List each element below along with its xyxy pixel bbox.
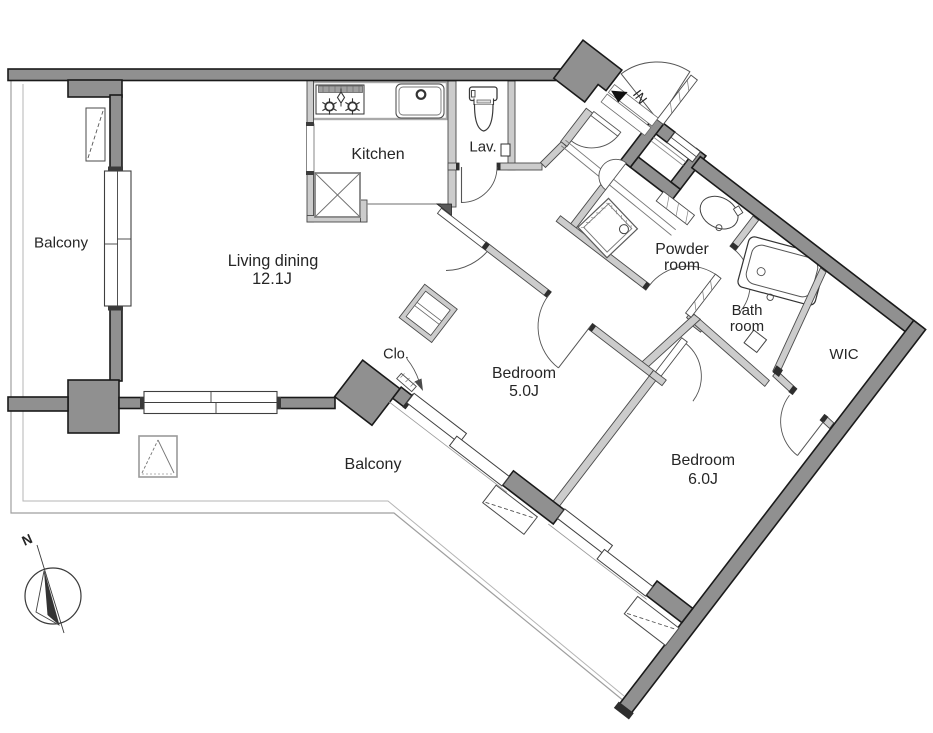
svg-text:Lav.: Lav. [469, 139, 496, 156]
svg-text:Balcony: Balcony [345, 456, 402, 473]
svg-text:12.1J: 12.1J [252, 270, 292, 288]
svg-text:5.0J: 5.0J [509, 383, 539, 400]
svg-text:6.0J: 6.0J [688, 471, 718, 488]
svg-text:Living dining: Living dining [228, 252, 319, 270]
svg-text:WIC: WIC [829, 346, 858, 363]
svg-text:Clo.: Clo. [383, 347, 409, 363]
svg-text:Powder: Powder [655, 241, 709, 258]
svg-text:room: room [730, 318, 764, 335]
svg-text:Bath: Bath [732, 302, 763, 319]
svg-text:Bedroom: Bedroom [492, 365, 556, 382]
svg-text:Balcony: Balcony [34, 235, 88, 252]
svg-text:room: room [664, 257, 700, 274]
svg-text:Kitchen: Kitchen [351, 146, 404, 163]
svg-text:Bedroom: Bedroom [671, 452, 735, 469]
